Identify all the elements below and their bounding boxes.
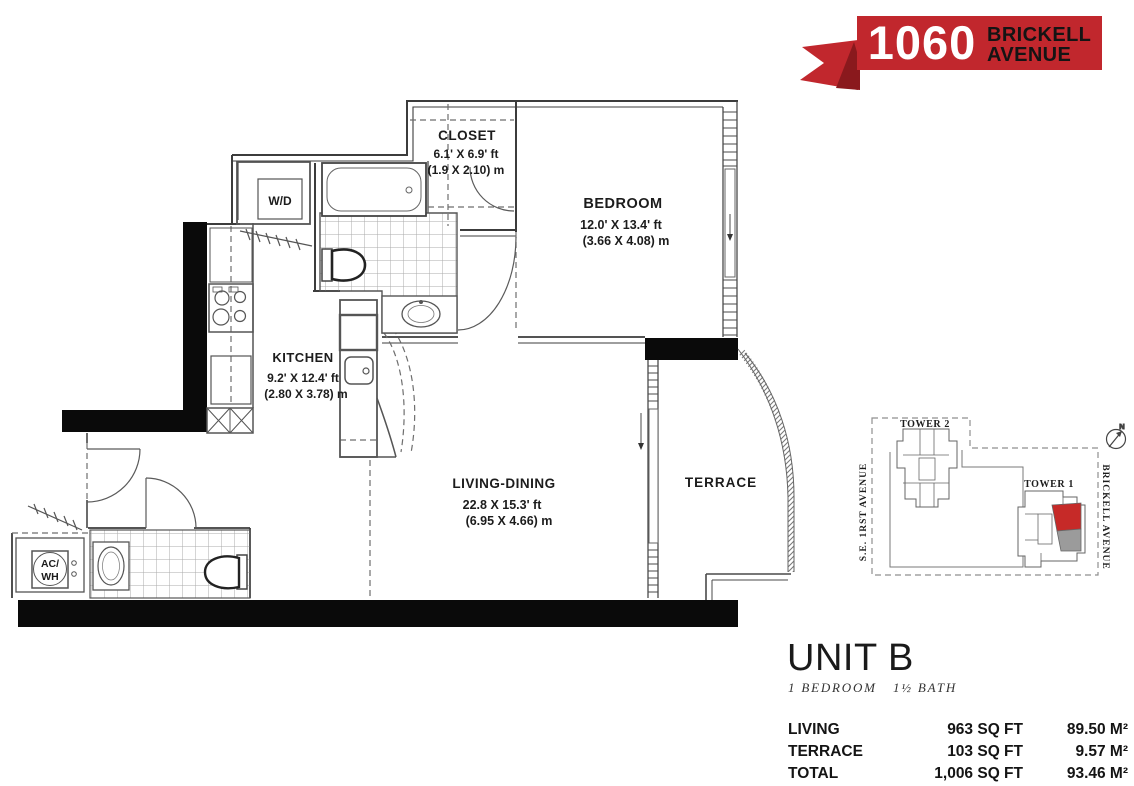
site-map: TOWER 2 TOWER 1 S.E. 1RST AVENUE BRICKEL… bbox=[859, 418, 1126, 575]
stat-m2: 9.57 M² bbox=[1075, 743, 1128, 760]
bathtub bbox=[322, 163, 426, 216]
sliding-door-pane bbox=[649, 409, 658, 543]
wd-louver-door bbox=[240, 231, 312, 246]
closet-dim-ft: 6.1' X 6.9' ft bbox=[433, 147, 498, 161]
tower2-label: TOWER 2 bbox=[900, 419, 950, 430]
street-left-label: S.E. 1RST AVENUE bbox=[859, 463, 869, 562]
toilet-bowl bbox=[332, 249, 365, 280]
island-curve-dash1 bbox=[384, 333, 404, 452]
wd-label: W/D bbox=[268, 194, 292, 208]
island-flare bbox=[340, 398, 396, 457]
bedroom-door-arc bbox=[458, 237, 516, 330]
window-hatch-top bbox=[723, 112, 737, 166]
stove-burner bbox=[235, 311, 246, 322]
wall-bottom bbox=[18, 600, 738, 627]
powder-room bbox=[90, 530, 250, 598]
living-dim-ft: 22.8 X 15.3' ft bbox=[463, 498, 543, 512]
closet-label: CLOSET bbox=[438, 128, 496, 143]
stat-label: LIVING bbox=[788, 721, 840, 738]
entry-door-arc bbox=[87, 449, 140, 502]
terrace-label: TERRACE bbox=[685, 475, 757, 490]
unit-subtitle-bath: 1½ BATH bbox=[893, 680, 957, 695]
living-dim-m: (6.95 X 4.66) m bbox=[466, 514, 553, 528]
logo-line1: BRICKELL bbox=[987, 24, 1091, 46]
stove-burner bbox=[215, 291, 229, 305]
bedroom-dim-ft: 12.0' X 13.4' ft bbox=[580, 218, 663, 232]
kitchen-dim-ft: 9.2' X 12.4' ft bbox=[267, 371, 339, 385]
powder-toilet-bowl bbox=[205, 556, 239, 588]
window-hatch-bottom bbox=[723, 280, 737, 335]
logo-ribbon: 1060 BRICKELL AVENUE bbox=[800, 16, 1102, 90]
stat-sqft: 103 SQ FT bbox=[947, 743, 1023, 760]
bedroom-window-wall bbox=[723, 101, 737, 337]
terrace-window-wall bbox=[638, 360, 658, 598]
slide-arrow bbox=[638, 443, 644, 450]
unit-info: UNIT B 1 BEDROOM 1½ BATH LIVING 963 SQ F… bbox=[787, 637, 1128, 782]
unit-title: UNIT B bbox=[787, 637, 914, 679]
closet-dim-m: (1.9 X 2.10) m bbox=[428, 163, 505, 177]
living-label: LIVING-DINING bbox=[452, 476, 555, 491]
stove-burner bbox=[213, 309, 229, 325]
bedroom-dim-m: (3.66 X 4.08) m bbox=[583, 234, 670, 248]
stat-m2: 93.46 M² bbox=[1067, 765, 1128, 782]
kitchen-dim-m: (2.80 X 3.78) m bbox=[264, 387, 347, 401]
logo-line2: AVENUE bbox=[987, 44, 1071, 66]
stat-m2: 89.50 M² bbox=[1067, 721, 1128, 738]
ac-label-line1: AC/ bbox=[41, 558, 59, 570]
wall-left-horizontal bbox=[62, 410, 207, 432]
stat-sqft: 963 SQ FT bbox=[947, 721, 1023, 738]
compass: N bbox=[1107, 422, 1126, 449]
kitchen-label: KITCHEN bbox=[272, 350, 333, 365]
laundry bbox=[237, 162, 310, 224]
unit-subtitle-bed: 1 BEDROOM bbox=[788, 680, 877, 695]
stat-label: TERRACE bbox=[788, 743, 863, 760]
stove-burner bbox=[235, 292, 246, 303]
island-curve-dash2 bbox=[393, 329, 415, 453]
unit-b-highlight-red bbox=[1052, 503, 1081, 531]
ac-label-line2: WH bbox=[41, 571, 59, 583]
stats-table: LIVING 963 SQ FT 89.50 M² TERRACE 103 SQ… bbox=[788, 721, 1128, 782]
bedroom-label: BEDROOM bbox=[583, 196, 662, 212]
terrace-step bbox=[706, 574, 791, 600]
tower1-label: TOWER 1 bbox=[1024, 479, 1074, 490]
tower1-footprint bbox=[1018, 491, 1085, 567]
wall-bedroom-terrace bbox=[645, 338, 738, 360]
toilet-tank bbox=[322, 249, 332, 281]
stat-label: TOTAL bbox=[788, 765, 838, 782]
powder-sink bbox=[98, 547, 124, 585]
compass-n-label: N bbox=[1119, 422, 1124, 431]
stat-sqft: 1,006 SQ FT bbox=[934, 765, 1023, 782]
logo-number: 1060 bbox=[868, 16, 977, 69]
tower2-footprint bbox=[897, 429, 957, 507]
vanity-faucet bbox=[419, 300, 423, 304]
powder-door-arc bbox=[146, 478, 196, 528]
island-cabinet bbox=[340, 315, 377, 350]
wall-left-vertical bbox=[183, 222, 207, 414]
wd-closet bbox=[237, 162, 310, 224]
street-right-label: BRICKELL AVENUE bbox=[1100, 464, 1110, 569]
window-hatch-top bbox=[648, 366, 658, 401]
floorplan-page: CLOSET 6.1' X 6.9' ft (1.9 X 2.10) m BED… bbox=[0, 0, 1134, 786]
window-hatch-bottom bbox=[648, 550, 658, 592]
floorplan-canvas: CLOSET 6.1' X 6.9' ft (1.9 X 2.10) m BED… bbox=[0, 0, 1134, 786]
kitchen-faucet bbox=[363, 368, 369, 374]
adjacent-unit-gray bbox=[1057, 529, 1081, 551]
